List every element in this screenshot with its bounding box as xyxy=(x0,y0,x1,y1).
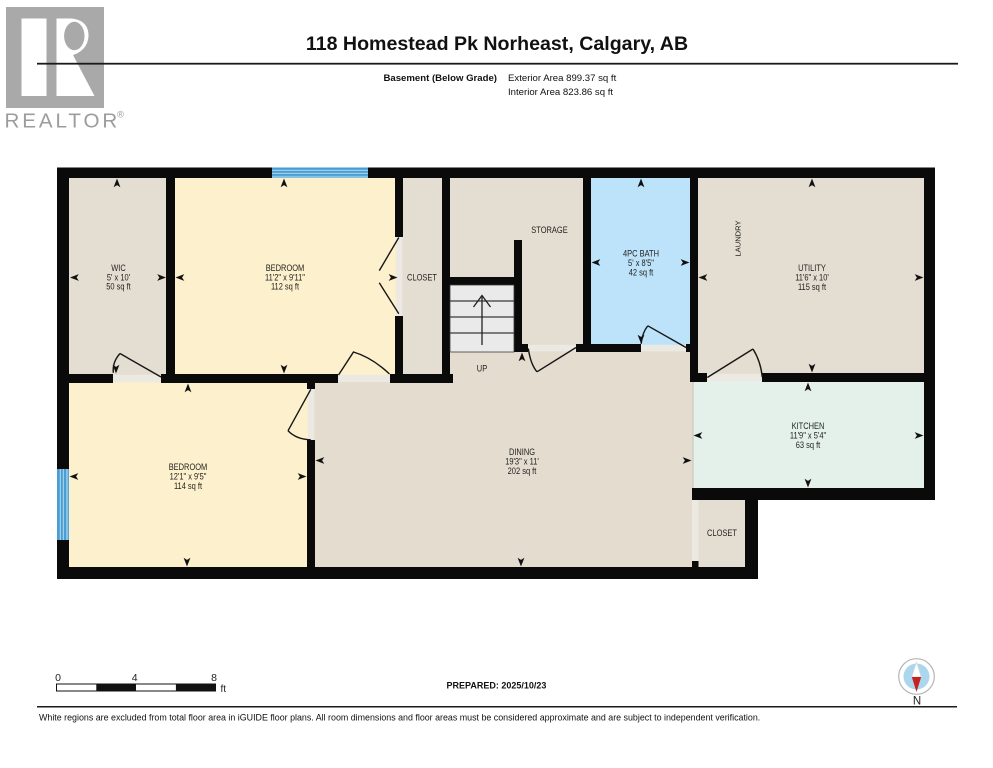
svg-text:8: 8 xyxy=(211,672,217,684)
svg-text:115 sq ft: 115 sq ft xyxy=(798,282,827,292)
svg-text:12'1" x 9'5": 12'1" x 9'5" xyxy=(170,472,207,482)
svg-text:19'3" x 11': 19'3" x 11' xyxy=(505,457,539,467)
svg-text:LAUNDRY: LAUNDRY xyxy=(734,220,743,256)
svg-text:63 sq ft: 63 sq ft xyxy=(796,440,821,450)
svg-text:UP: UP xyxy=(477,364,487,374)
svg-text:42 sq ft: 42 sq ft xyxy=(629,268,654,278)
svg-text:STORAGE: STORAGE xyxy=(531,225,567,235)
svg-text:CLOSET: CLOSET xyxy=(707,528,737,538)
svg-text:202 sq ft: 202 sq ft xyxy=(508,466,537,476)
svg-text:Basement (Below Grade): Basement (Below Grade) xyxy=(383,73,497,84)
svg-text:®: ® xyxy=(117,110,124,121)
svg-text:114 sq ft: 114 sq ft xyxy=(174,481,203,491)
svg-text:5' x 8'5": 5' x 8'5" xyxy=(628,258,654,268)
svg-text:White regions are excluded fro: White regions are excluded from total fl… xyxy=(39,713,760,723)
svg-text:4: 4 xyxy=(132,672,138,684)
svg-text:WIC: WIC xyxy=(111,263,126,273)
svg-text:11'6" x 10': 11'6" x 10' xyxy=(795,273,829,283)
svg-text:BEDROOM: BEDROOM xyxy=(169,462,208,472)
svg-text:11'9" x 5'4": 11'9" x 5'4" xyxy=(790,431,826,441)
svg-text:KITCHEN: KITCHEN xyxy=(792,421,825,431)
svg-text:Exterior Area 899.37 sq ft: Exterior Area 899.37 sq ft xyxy=(508,73,617,84)
svg-text:DINING: DINING xyxy=(509,447,535,457)
svg-text:UTILITY: UTILITY xyxy=(798,263,826,273)
svg-text:0: 0 xyxy=(55,672,61,684)
svg-text:N: N xyxy=(913,696,921,708)
svg-text:CLOSET: CLOSET xyxy=(407,272,437,282)
svg-text:Interior Area 823.86 sq ft: Interior Area 823.86 sq ft xyxy=(508,87,613,98)
svg-text:112 sq ft: 112 sq ft xyxy=(271,282,300,292)
svg-text:ft: ft xyxy=(221,684,227,695)
svg-text:118 Homestead Pk Norheast, Cal: 118 Homestead Pk Norheast, Calgary, AB xyxy=(306,33,688,55)
svg-text:BEDROOM: BEDROOM xyxy=(266,263,305,273)
svg-text:50 sq ft: 50 sq ft xyxy=(106,282,131,292)
svg-text:4PC BATH: 4PC BATH xyxy=(623,249,659,259)
svg-text:PREPARED: 2025/10/23: PREPARED: 2025/10/23 xyxy=(447,681,547,691)
svg-text:REALTOR: REALTOR xyxy=(5,110,121,133)
